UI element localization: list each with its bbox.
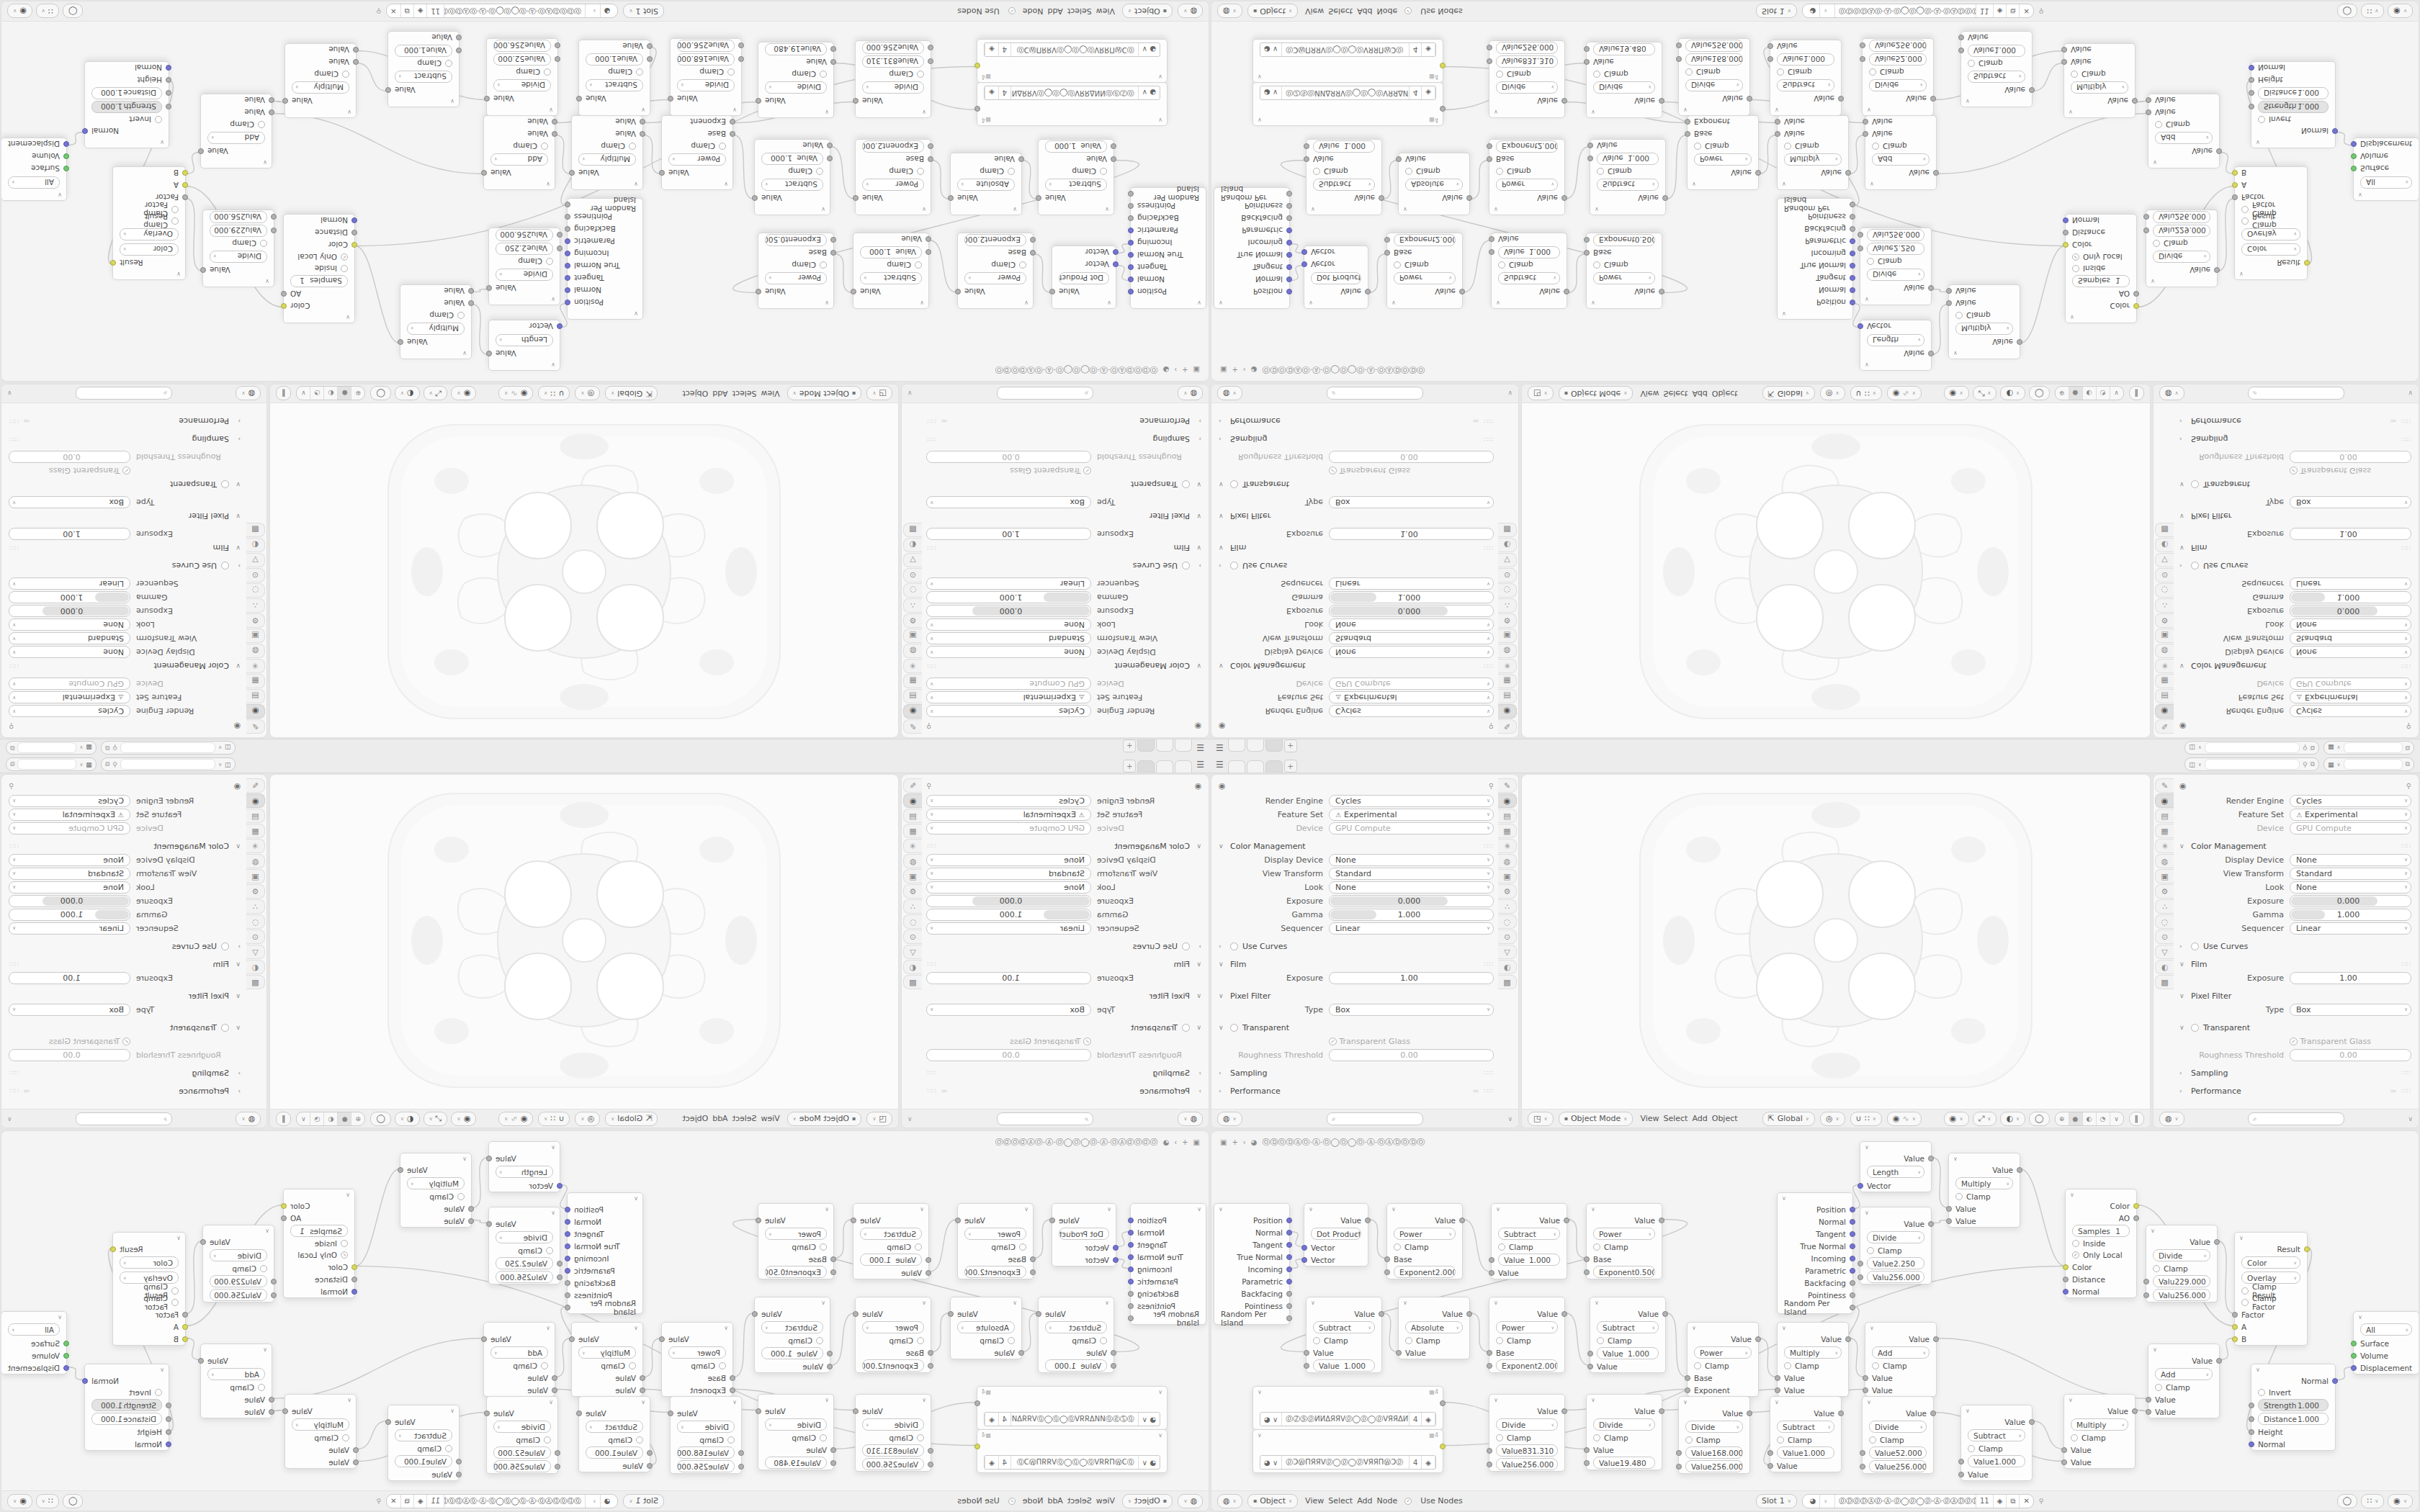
display-device-dropdown[interactable]: None∨ [1329,646,1494,658]
copy-icon[interactable]: ⧉ [105,760,109,768]
properties-tab-0-icon[interactable]: ✎ [1498,719,1517,734]
node-header[interactable]: ∨ [2251,138,2335,148]
proportional-editing-dropdown[interactable]: ◉∿∨ [1887,387,1922,401]
input-socket[interactable] [1584,1256,1590,1262]
collapse-icon[interactable]: ∨ [2239,271,2244,278]
output-socket[interactable] [486,351,492,357]
node-checkbox[interactable] [1593,71,1600,78]
collapse-icon[interactable]: ∨ [1595,1300,1599,1306]
node-header[interactable]: ∨ [2066,1189,2136,1200]
input-socket[interactable] [1113,1245,1119,1251]
node-div19[interactable]: ∨ValueDivide∨ClampValueValue19.480 [758,1394,834,1470]
node-header[interactable]: ∨ [2148,158,2219,168]
node-dot[interactable]: ∨ValueDot Product∨VectorVector [1052,1203,1116,1266]
copy-icon[interactable]: ⧉ [2406,744,2410,752]
operation-dropdown[interactable]: Absolute∨ [1405,179,1463,191]
value-field[interactable]: Valu256.000 [1867,1271,1924,1283]
workspace-tab[interactable] [1265,739,1283,752]
node-data2[interactable]: ∨▦4◕ ∨ⓄƆⓌПЯЯVⓄ◯Ⓞ◯ⓄVЯЯПⓌƆⓄ4◈ [977,1429,1168,1473]
shading-mode-1-icon[interactable]: ● [337,387,351,400]
node-header[interactable]: ∨ [1489,204,1564,215]
operation-dropdown[interactable]: Multiply∨ [407,1177,465,1189]
show-gizmo-button[interactable]: ◉∨ [1944,387,1969,401]
node-subd[interactable]: ∨ValueSubtract∨ClampValue1.000Value [1770,1396,1842,1472]
output-socket[interactable] [565,1219,570,1225]
node-header[interactable]: ∨ [1770,1397,1841,1407]
expander-icon[interactable]: ∨ [1194,960,1201,968]
datablock-icon[interactable]: ◕ ∨ [1260,1456,1282,1469]
input-socket[interactable] [1030,1256,1036,1262]
render-engine-dropdown[interactable]: Cycles∨ [2290,705,2411,717]
input-socket[interactable] [2249,104,2254,110]
node-checkbox[interactable] [816,1337,823,1344]
node-header[interactable]: ∨ [1489,1395,1564,1405]
shader-editor[interactable]: ▣ + › ◕ ⓄⒹⓄⒹⒶⓄ·Ⓐ·Ⓞ◯Ⓞ◯Ⓞ·Ⓐ·ⓄⒶⒹⓄⒹⓄ ∨Positio… [1211,1130,2419,1511]
exposure-field[interactable]: 0.000 [9,605,130,617]
section-film[interactable]: ∨Film∷∷ [1219,958,1494,971]
collapse-icon[interactable]: ∨ [1494,1397,1498,1403]
expander-icon[interactable]: ∨ [233,842,241,850]
properties-tab-10-icon[interactable]: ⊙ [246,568,265,582]
node-checkbox[interactable] [1685,68,1693,76]
operation-dropdown[interactable]: Multiply∨ [1955,1177,2013,1189]
input-socket[interactable] [1018,1350,1024,1356]
editor-type-button[interactable]: ◍∨ [1217,1112,1242,1126]
input-socket[interactable] [647,1450,653,1456]
node-checkbox[interactable] [1405,1337,1412,1344]
node-addr2[interactable]: ∨ValueAdd∨ClampValueValue [1865,115,1937,190]
node-mul1[interactable]: ∨ValueMultiply∨ClampValueValue [400,1153,472,1228]
node-header[interactable]: ∨ [755,204,830,215]
input-socket[interactable] [1860,43,1865,49]
search-input[interactable]: ⌕ [76,1112,172,1125]
value-field[interactable]: Valu256.000 [2153,1289,2210,1301]
input-socket[interactable] [1860,1450,1865,1456]
operation-dropdown[interactable]: Length∨ [1867,1166,1924,1178]
view-transform-dropdown[interactable]: Standard∨ [9,632,130,644]
section-pixel-filter[interactable]: ∨Pixel Filter [1219,989,1494,1002]
transform-orientation-dropdown[interactable]: ⇱Global∨ [1762,387,1815,401]
collapse-icon[interactable]: ∨ [1782,311,1786,318]
node-checkbox[interactable] [1867,258,1874,265]
output-socket[interactable] [484,1410,490,1416]
node-checkbox[interactable] [171,217,179,225]
node-div831[interactable]: ∨ValueDivide∨ClampValue831.310Value256.0… [1489,40,1565,118]
node-pow05[interactable]: ∨ValuePower∨ClampBaseExponent0.500 [1586,1203,1662,1279]
exposure-field[interactable]: 1.00 [926,972,1091,984]
properties-tab-4-icon[interactable]: ✳ [903,659,922,673]
node-header[interactable]: ∨▦4 [977,115,1167,125]
node-powr2[interactable]: ∨ValuePower∨ClampBaseExponent2.000 [1489,139,1565,215]
node-header[interactable]: ∨ [400,1153,471,1164]
operation-dropdown[interactable]: Absolute∨ [957,1321,1015,1333]
viewport-3d[interactable]: ◳∨ ▪Object Mode∨ ViewSelectAddObject ⇱Gl… [1521,774,2151,1128]
node-checkbox[interactable] [258,1384,265,1391]
input-socket[interactable] [830,1460,836,1466]
properties-tab-0-icon[interactable]: ✎ [903,719,922,734]
collapse-icon[interactable]: ∨ [346,1192,350,1198]
transform-orientation-dropdown[interactable]: ⇱Global∨ [605,1112,658,1126]
properties-tab-3-icon[interactable]: ▦ [2155,824,2174,838]
operation-dropdown[interactable]: Divide∨ [2153,1249,2210,1261]
node-header[interactable]: ∨ [758,1395,833,1405]
node-div52[interactable]: ∨ValueDivide∨ClampValue52.000Value256.00… [486,38,558,116]
editor-type-button[interactable]: ◍∨ [2159,1112,2184,1126]
properties-tab-11-icon[interactable]: ▽ [903,553,922,567]
output-socket[interactable] [1755,1336,1761,1342]
value-field[interactable]: Value831.310 [1496,1444,1558,1457]
output-socket[interactable] [398,1167,403,1173]
search-input[interactable]: ⌕ [997,387,1093,400]
section-sampling[interactable]: ›Sampling∷∷ [9,1066,241,1079]
properties-tab-10-icon[interactable]: ⊙ [2155,568,2174,582]
node-addh[interactable]: ∨ValueAdd∨ClampValueValue [200,1344,272,1418]
collapse-icon[interactable]: ∨ [1391,300,1396,307]
output-socket[interactable] [955,1218,961,1223]
node-checkbox[interactable] [636,68,643,76]
collapse-icon[interactable]: ∨ [1867,1399,1871,1405]
sequencer-dropdown[interactable]: Linear∨ [9,922,130,935]
expander-icon[interactable]: ∨ [1219,481,1226,488]
properties-tab-8-icon[interactable]: ∴ [903,598,922,613]
shading-mode-switch[interactable]: ⊕●◐◔∨ [2055,387,2124,401]
value-field[interactable]: Value1.000 [395,45,452,57]
node-header[interactable]: ∨ [2235,1233,2307,1243]
node-subr2b[interactable]: ∨ValueSubtract∨ClampValue1.000Value [1590,1297,1666,1373]
input-socket[interactable] [1487,1363,1492,1369]
collapse-icon[interactable]: ∨ [2151,279,2155,285]
collapse-icon[interactable]: ∨ [2256,140,2260,146]
shading-mode-3-icon[interactable]: ◔ [2097,1112,2110,1125]
scene-name-field[interactable] [120,759,215,770]
output-socket[interactable] [668,96,673,102]
feature-set-dropdown[interactable]: ⚠Experimental∨ [926,809,1091,821]
expander-icon[interactable]: › [2179,1087,2187,1094]
gamma-field[interactable]: 1.000 [2290,909,2411,921]
node-subr2b[interactable]: ∨ValueSubtract∨ClampValue1.000Value [1590,139,1666,215]
value-field[interactable]: Value256.000 [862,1458,924,1470]
input-socket[interactable] [1587,156,1593,162]
viewport-3d[interactable]: ◳∨ ▪Object Mode∨ ViewSelectAddObject ⇱Gl… [269,384,899,738]
list-icon[interactable]: ≔ [1473,418,1480,425]
node-header[interactable]: ∨ [671,105,741,115]
collapse-icon[interactable]: ∨ [549,107,553,114]
view-layer-name-field[interactable] [2344,759,2403,770]
add-workspace-button[interactable]: + [1284,760,1297,773]
input-socket[interactable] [166,1441,171,1447]
expander-icon[interactable]: ∨ [1194,842,1201,850]
output-socket[interactable] [565,1268,570,1274]
node-geo2[interactable]: ∨PositionNormalTangentTrue NormalIncomin… [567,198,643,320]
input-socket[interactable] [1857,1183,1863,1189]
node-header[interactable]: ∨ [489,1207,560,1218]
list-icon[interactable]: ≔ [940,418,947,425]
pin-icon[interactable]: ⚲ [1489,723,1494,731]
input-socket[interactable] [552,1375,557,1381]
fake-user-icon[interactable]: ◈ [1422,1413,1435,1426]
input-socket[interactable] [1685,120,1690,125]
expander-icon[interactable]: › [1194,942,1201,950]
properties-tab-13-icon[interactable]: ▩ [1498,523,1517,537]
look-dropdown[interactable]: None∨ [2290,618,2411,631]
section-film[interactable]: ∨Film∷∷ [926,958,1201,971]
value-field[interactable]: Value2.250 [1867,243,1924,255]
section-pixel-filter[interactable]: ∨Pixel Filter [9,989,241,1002]
output-socket[interactable] [1128,1315,1134,1321]
datablock-field[interactable]: ◕ ∨ⓄⓏⓈⓄИИΔЯЯVⓄ◯Ⓞ◯ⓄVЯЯΔИИⓄⓈⓏⓄ4◈ [1260,1412,1436,1426]
search-input[interactable]: ⌕ [2248,387,2344,400]
node-subr2b[interactable]: ∨ValueSubtract∨ClampValue1.000Value [754,1297,830,1373]
node-checkbox[interactable] [1872,143,1879,150]
section-color-management[interactable]: ∨Color Management∷∷ [9,840,241,852]
scene-selector[interactable]: ◫∨ ⚲ ⧉ [2184,741,2319,755]
input-socket[interactable] [1489,1257,1494,1263]
operation-dropdown[interactable]: Divide∨ [1867,269,1924,281]
properties-tab-11-icon[interactable]: ▽ [1498,553,1517,567]
node-div229[interactable]: ∨ValueDivide∨ClampValu229.000Valu256.000 [202,1225,274,1302]
operation-dropdown[interactable]: Divide∨ [862,1418,924,1431]
pin-icon[interactable]: ⚲ [926,723,931,731]
properties-tab-11-icon[interactable]: ▽ [903,945,922,959]
user-count-badge[interactable]: 4 [998,1456,1010,1469]
output-socket[interactable] [1659,1408,1664,1414]
value-field[interactable]: Exponent0.500 [1593,234,1655,246]
input-socket[interactable] [1396,157,1402,163]
value-field[interactable]: Value168.000 [677,53,735,66]
node-checkbox[interactable] [2258,116,2265,123]
datablock-icon[interactable]: ◕ ∨ [1260,86,1282,99]
node-header[interactable]: ∨ [113,269,185,279]
filter-dropdown[interactable]: ∨ [1507,1115,1512,1122]
operation-dropdown[interactable]: All∨ [2360,176,2412,189]
view-transform-dropdown[interactable]: Standard∨ [1329,632,1494,644]
expander-icon[interactable]: › [233,1069,241,1076]
operation-dropdown[interactable]: Overlay∨ [2241,228,2300,240]
operation-dropdown[interactable]: Divide∨ [210,1249,267,1261]
shading-mode-0-icon[interactable]: ⊕ [2056,387,2069,400]
show-overlays-button[interactable]: ⤢∨ [1973,387,1997,401]
value-field[interactable]: Value256.000 [1496,1458,1558,1470]
collapse-icon[interactable]: ∨ [920,1206,924,1212]
menu-view[interactable]: View [1638,1114,1661,1123]
search-input[interactable]: ⌕ [1327,1112,1423,1125]
node-header[interactable]: ∨ [2148,1344,2219,1354]
node-checkbox[interactable] [2072,265,2079,272]
input-socket[interactable] [1584,47,1590,53]
input-socket[interactable] [557,1261,563,1266]
collapse-icon[interactable]: ∨ [1403,207,1407,213]
value-field[interactable]: Value1.000 [586,53,643,66]
input-socket[interactable] [647,1463,653,1469]
operation-dropdown[interactable]: Dot Product∨ [1311,272,1361,284]
node-header[interactable]: ∨ [388,96,459,107]
node-bump[interactable]: ∨NormalInvertStrength1.000Distance1.000H… [84,61,169,148]
collapse-icon[interactable]: ∨ [1870,181,1874,188]
operation-dropdown[interactable]: Color∨ [120,243,179,256]
value-field[interactable]: Distance1.000 [91,1413,162,1425]
value-field[interactable]: Exponent0.500 [765,1266,827,1278]
properties-tab-6-icon[interactable]: ▣ [903,629,922,643]
properties-tab-5-icon[interactable]: ◍ [2155,854,2174,868]
xray-toggle-button[interactable]: ◐∨ [395,1112,420,1126]
output-socket[interactable] [1286,1279,1292,1284]
value-field[interactable]: Value1.000 [1045,1359,1107,1372]
value-field[interactable]: Value1.000 [1313,140,1375,153]
value-field[interactable]: Strength1.000 [2258,1399,2329,1411]
menu-add[interactable]: Add [710,389,730,398]
value-field[interactable]: Strength1.000 [2258,101,2329,113]
shading-dropdown-icon[interactable]: ∨ [297,1112,310,1125]
node-div831[interactable]: ∨ValueDivide∨ClampValue831.310Value256.0… [855,1394,931,1472]
expander-icon[interactable]: › [233,562,241,570]
node-abs[interactable]: ∨ValueAbsolute∨ClampValue [950,1297,1022,1359]
section-pixel-filter[interactable]: ∨Pixel Filter [2179,989,2411,1002]
expander-icon[interactable]: ∨ [1194,662,1201,670]
collapse-icon[interactable]: ∨ [1309,1206,1313,1212]
input-socket[interactable] [1301,1257,1307,1263]
type-dropdown[interactable]: Box∨ [2290,1004,2411,1016]
section-sampling[interactable]: ›Sampling∷∷ [2179,433,2411,446]
shading-mode-0-icon[interactable]: ⊕ [351,387,364,400]
output-socket[interactable] [481,1336,487,1342]
node-header[interactable]: ∨▦4 [977,1430,1167,1440]
collapse-icon[interactable]: ∨ [1158,117,1162,124]
operation-dropdown[interactable]: Divide∨ [1496,1418,1558,1431]
output-socket[interactable] [82,129,88,135]
node-mix[interactable]: ∨ResultColor∨Overlay∨Clamp ResultClamp F… [112,166,186,280]
collapse-icon[interactable]: ∨ [634,1325,638,1331]
operation-dropdown[interactable]: Multiply∨ [407,323,465,335]
operation-dropdown[interactable]: Subtract∨ [1968,1429,2025,1441]
properties-tab-12-icon[interactable]: ◐ [903,538,922,552]
output-socket[interactable] [82,1378,88,1384]
roughness-threshold-field[interactable]: 0.00 [1329,451,1494,463]
input-socket[interactable] [182,1312,188,1318]
input-socket[interactable] [1946,289,1952,294]
node-subr2[interactable]: ∨ValueSubtract∨ClampValueValue1.000 [1038,1297,1114,1373]
output-socket[interactable] [1128,277,1134,283]
collapse-icon[interactable]: ∨ [1158,74,1162,81]
node-checkbox[interactable] [1313,168,1320,175]
output-socket[interactable] [1128,204,1134,210]
node-checkbox[interactable] [541,143,548,150]
operation-dropdown[interactable]: Dot Product∨ [1059,1228,1109,1240]
collapse-icon[interactable]: ∨ [1692,1325,1696,1331]
value-field[interactable]: Exponent2.000 [862,140,924,153]
properties-tab-4-icon[interactable]: ✳ [2155,659,2174,673]
input-socket[interactable] [351,1264,357,1270]
properties-tab-1-icon[interactable]: ◉ [903,793,922,808]
output-socket[interactable] [851,1218,856,1223]
collapse-icon[interactable]: ∨ [2239,1235,2244,1241]
section-use-curves[interactable]: ›Use Curves [1219,559,1494,572]
section-performance[interactable]: ›Performance≔∷∷ [926,415,1201,428]
node-mix[interactable]: ∨ResultColor∨Overlay∨Clamp ResultClamp F… [112,1232,186,1346]
output-socket[interactable] [1564,1218,1569,1223]
node-header[interactable]: ∨ [1587,298,1662,308]
properties-tab-7-icon[interactable]: ⚙ [2155,613,2174,628]
render-engine-dropdown[interactable]: Cycles∨ [1329,705,1494,717]
operation-dropdown[interactable]: Power∨ [1694,1346,1752,1359]
expander-icon[interactable]: › [1219,418,1226,425]
node-header[interactable]: ∨ [484,1323,555,1333]
collapse-icon[interactable]: ∨ [1775,107,1779,114]
collapse-icon[interactable]: ∨ [724,181,728,188]
list-icon[interactable]: ≔ [2390,418,2398,425]
node-checkbox[interactable] [917,1434,924,1441]
input-socket[interactable] [2249,1416,2254,1422]
value-field[interactable]: Distance1.000 [91,87,162,99]
node-dot[interactable]: ∨ValueDot Product∨VectorVector [1052,246,1116,309]
exposure-field[interactable]: 0.000 [926,895,1091,907]
expander-icon[interactable]: › [1219,942,1226,950]
operation-dropdown[interactable]: Divide∨ [2153,251,2210,263]
node-subf[interactable]: ∨ValueSubtract∨ClampValue1.000Value [387,1405,460,1481]
input-socket[interactable] [926,1270,931,1276]
workspace-tab[interactable] [1228,739,1245,752]
input-socket[interactable] [1487,144,1492,150]
collapse-icon[interactable]: ∨ [825,300,829,307]
output-socket[interactable] [756,1408,761,1414]
properties-tab-13-icon[interactable]: ▩ [1498,975,1517,989]
operation-dropdown[interactable]: Divide∨ [862,81,924,94]
collapse-icon[interactable]: ∨ [2256,1367,2260,1373]
properties-tab-6-icon[interactable]: ▣ [246,629,265,643]
expander-icon[interactable]: › [233,436,241,443]
collapse-icon[interactable]: ∨ [724,1325,728,1331]
section-use-curves[interactable]: ›Use Curves [1219,940,1494,953]
node-powr2[interactable]: ∨ValuePower∨ClampBaseExponent2.000 [1489,1297,1565,1373]
input-socket[interactable] [2143,1292,2149,1298]
value-field[interactable]: Valu256.000 [496,1271,553,1283]
output-socket[interactable] [281,1215,287,1221]
output-socket[interactable] [565,1207,570,1212]
input-socket[interactable] [827,1364,833,1369]
node-div229[interactable]: ∨ValueDivide∨ClampValu229.000Valu256.000 [2146,1225,2218,1302]
copy-icon[interactable]: ⧉ [105,744,109,752]
node-header[interactable]: ∨ [1949,348,2020,359]
node-header[interactable]: ∨ [1778,1193,1852,1203]
node-header[interactable]: ∨ [856,204,931,215]
display-device-dropdown[interactable]: None∨ [926,646,1091,658]
operation-dropdown[interactable]: Divide∨ [496,1231,553,1243]
output-socket[interactable] [576,96,582,102]
value-field[interactable]: Value256.000 [1685,40,1743,52]
node-checkbox[interactable] [1394,1243,1401,1251]
search-input[interactable]: ⌕ [997,1112,1093,1125]
properties-tab-0-icon[interactable]: ✎ [246,778,265,793]
feature-set-dropdown[interactable]: ⚠Experimental∨ [926,691,1091,703]
collapse-icon[interactable]: ∨ [1258,1389,1262,1395]
section-sampling[interactable]: ›Sampling∷∷ [2179,1066,2411,1079]
output-socket[interactable] [1128,216,1134,222]
value-field[interactable]: Exponent2.000 [1394,234,1456,246]
properties-tab-6-icon[interactable]: ▣ [2155,869,2174,883]
node-header[interactable]: ∨ [85,138,169,148]
properties-tab-4-icon[interactable]: ✳ [903,839,922,853]
output-socket[interactable] [1128,253,1134,258]
node-header[interactable]: ∨ [1863,105,1933,115]
device-dropdown[interactable]: GPU Compute∨ [9,678,130,690]
collapse-icon[interactable]: ∨ [1683,1399,1688,1405]
mode-dropdown[interactable]: ▪Object Mode∨ [787,387,862,401]
input-socket[interactable] [2351,1341,2357,1346]
node-checkbox[interactable] [917,71,924,78]
collapse-icon[interactable]: ∨ [265,279,269,285]
node-checkbox[interactable] [342,71,349,78]
input-socket[interactable] [640,1375,645,1381]
section-use-curves[interactable]: ›Use Curves [9,559,241,572]
